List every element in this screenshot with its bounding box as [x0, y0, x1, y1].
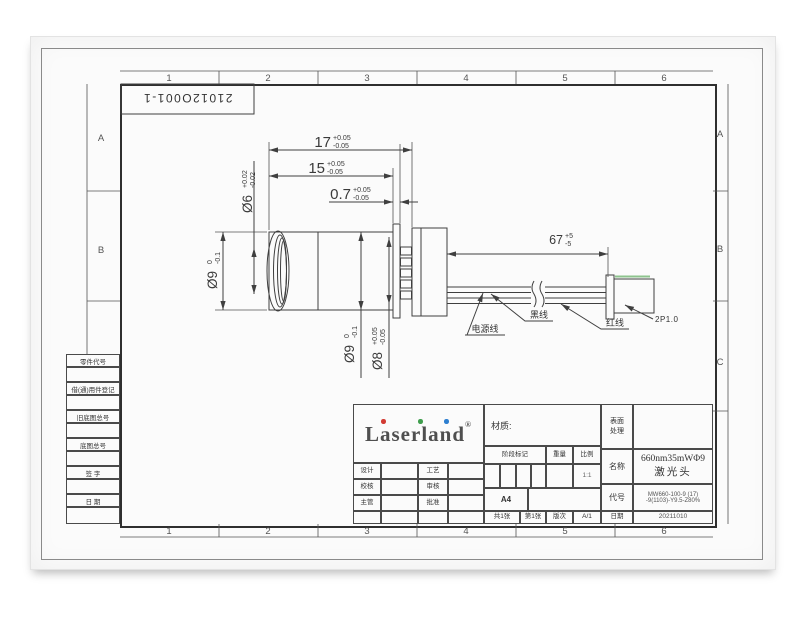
blank-cell [528, 488, 601, 511]
logo-red-dot [381, 419, 386, 424]
product-code-line2: -9(1103)-Y9.5-Z80% [646, 498, 700, 504]
margin-field-blank [66, 367, 120, 382]
stage-mark-box [500, 464, 516, 488]
logo-cell: Laserland® [353, 404, 484, 463]
surface-treatment-text: 表面处理 [609, 417, 625, 435]
drawing-photo: 零件代号 借(通)用件登记 旧底图总号 底图总号 签 字 日 期 Laserla… [30, 36, 776, 570]
margin-field-label: 零件代号 [66, 354, 120, 367]
revision-value: A/1 [573, 511, 601, 524]
stage-mark-box [516, 464, 531, 488]
sign-blank [448, 511, 484, 524]
product-name-line2: 激光头 [654, 464, 692, 479]
sign-label-review: 审核 [418, 479, 448, 495]
logo-green-dot [418, 419, 423, 424]
scale-label: 比例 [573, 446, 601, 464]
name-label: 名称 [601, 449, 633, 484]
sheets-total: 共1张 [484, 511, 520, 524]
sign-blank [418, 511, 448, 524]
margin-field-blank [66, 507, 120, 524]
sign-blank [381, 511, 418, 524]
sign-blank [381, 463, 418, 479]
sign-blank [353, 511, 381, 524]
sign-blank [381, 495, 418, 511]
page: 零件代号 借(通)用件登记 旧底图总号 底图总号 签 字 日 期 Laserla… [0, 0, 800, 643]
revision-label: 版次 [546, 511, 573, 524]
sign-label-design: 设计 [353, 463, 381, 479]
code-label: 代号 [601, 484, 633, 511]
margin-field-label: 底图总号 [66, 438, 120, 451]
margin-field-label: 借(通)用件登记 [66, 382, 120, 395]
material-label: 材质: [484, 404, 601, 446]
surface-treatment-label: 表面处理 [601, 404, 633, 449]
sheet-size: A4 [484, 488, 528, 511]
sign-label-supervisor: 主管 [353, 495, 381, 511]
date-value: 20211010 [633, 511, 713, 524]
product-code: MW660-100-9 (17) -9(1103)-Y9.5-Z80% [633, 484, 713, 511]
sign-blank [448, 463, 484, 479]
laserland-logo: Laserland® [365, 420, 472, 447]
sign-label-check: 校核 [353, 479, 381, 495]
sign-label-approve: 批准 [418, 495, 448, 511]
margin-field-blank [66, 423, 120, 438]
margin-field-label: 签 字 [66, 466, 120, 479]
margin-field-blank [66, 479, 120, 494]
date-label: 日期 [601, 511, 633, 524]
weight-value [546, 464, 573, 488]
weight-label: 重量 [546, 446, 573, 464]
margin-field-blank [66, 395, 120, 410]
margin-field-label: 旧底图总号 [66, 410, 120, 423]
sign-blank [381, 479, 418, 495]
stage-mark-box [531, 464, 546, 488]
logo-blue-dot [444, 419, 449, 424]
sheet-number: 第1张 [520, 511, 546, 524]
scale-value: 1:1 [573, 464, 601, 488]
sign-label-process: 工艺 [418, 463, 448, 479]
margin-field-blank [66, 451, 120, 466]
registered-mark: ® [465, 420, 472, 429]
product-name-line1: 660nm35mWΦ9 [641, 454, 705, 464]
sign-blank [448, 479, 484, 495]
sign-blank [448, 495, 484, 511]
stage-mark-box [484, 464, 500, 488]
product-name: 660nm35mWΦ9 激光头 [633, 449, 713, 484]
margin-field-label: 日 期 [66, 494, 120, 507]
surface-treatment-value [633, 404, 713, 449]
stage-mark-label: 阶段标记 [484, 446, 546, 464]
